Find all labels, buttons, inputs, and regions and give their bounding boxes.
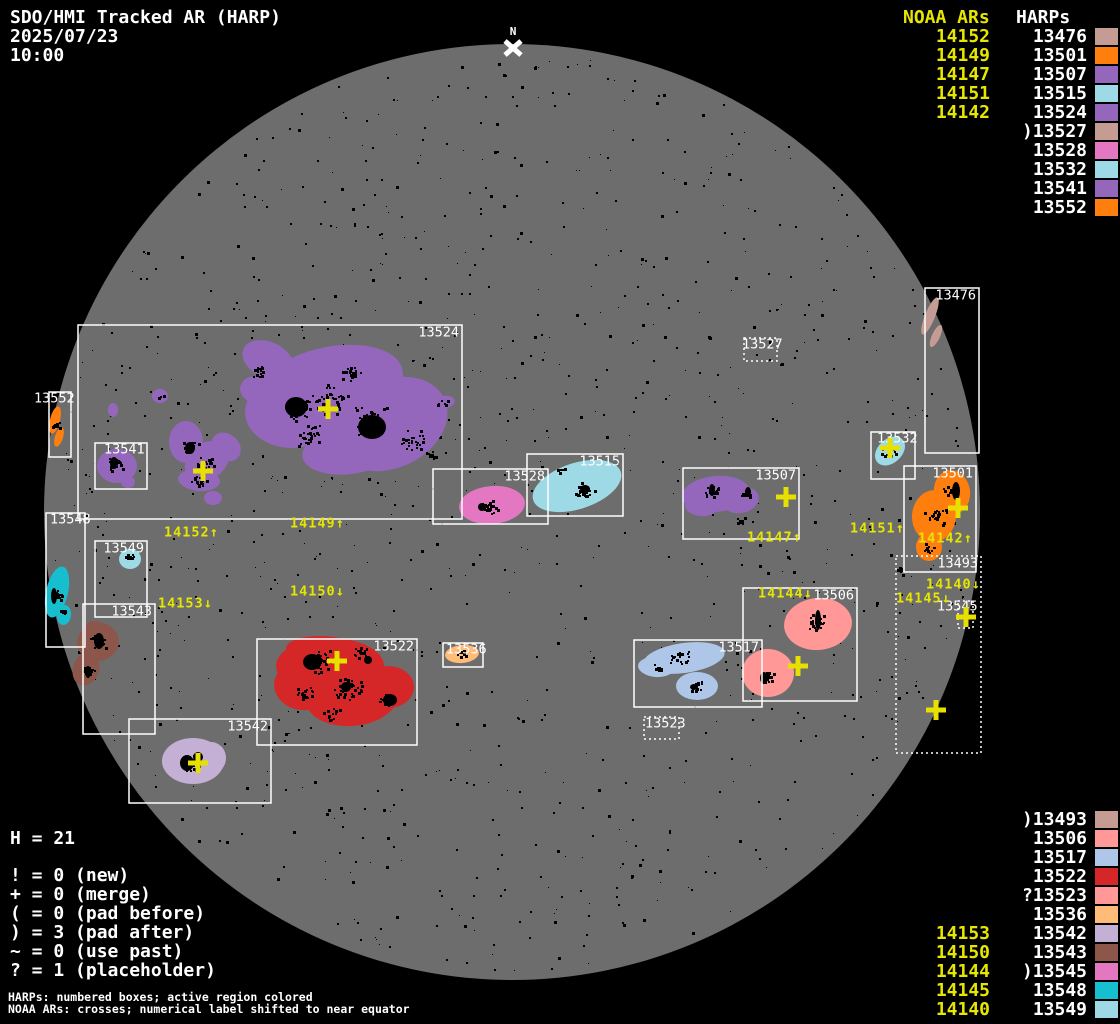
noaa-ar-number — [900, 867, 990, 886]
sunspot-patch — [580, 485, 590, 493]
harp-color-swatch — [1095, 180, 1118, 197]
noaa-ar-number: 14153 — [900, 924, 990, 943]
harp-number: 13528 — [990, 141, 1087, 160]
harp-list-row: 1415213476 — [900, 27, 1120, 46]
harp-number: 13517 — [990, 848, 1087, 867]
noaa-ar-number — [900, 829, 990, 848]
harp-number: 13506 — [990, 829, 1087, 848]
harp-color-swatch — [1095, 199, 1118, 216]
sunspot-patch — [815, 610, 821, 630]
noaa-ar-number — [900, 848, 990, 867]
sdo-hmi-harp-plot: 1352413552135411354813549135431354213522… — [0, 0, 1120, 1024]
region-blob — [204, 491, 222, 505]
noaa-ar-number: 14142 — [900, 103, 990, 122]
sunspot-patch — [760, 672, 768, 684]
harp-color-swatch — [1095, 1001, 1118, 1018]
footer-note-noaa: NOAA ARs: crosses; numerical label shift… — [8, 1003, 410, 1015]
sunspot-patch — [690, 684, 698, 690]
harp-number: 13549 — [990, 1000, 1087, 1019]
sunspot-patch — [745, 487, 751, 497]
harp-number: 13524 — [990, 103, 1087, 122]
noaa-ar-number: 14147 — [900, 65, 990, 84]
sunspot-patch — [478, 503, 486, 511]
sunspot-patch — [952, 482, 960, 500]
harp-list-row: 1415113515 — [900, 84, 1120, 103]
harp-list-row: 1414513548 — [900, 981, 1120, 1000]
sunspot-patch — [285, 397, 307, 417]
noaa-ar-disk-label: 14144↓ — [758, 586, 813, 602]
harp-number: 13552 — [990, 198, 1087, 217]
noaa-ar-disk-label: 14149↑ — [290, 516, 345, 532]
harp-list-row: 13528 — [900, 141, 1120, 160]
harp-color-swatch — [1095, 982, 1118, 999]
noaa-ar-disk-label: 14153↓ — [158, 596, 213, 612]
sunspot-patch — [303, 654, 321, 670]
harp-list-row: 1415313542 — [900, 924, 1120, 943]
harp-list-row: 13506 — [900, 829, 1120, 848]
harp-box-label: 13543 — [111, 604, 152, 620]
harp-list-row: 13552 — [900, 198, 1120, 217]
title-block: SDO/HMI Tracked AR (HARP) 2025/07/23 10:… — [10, 8, 281, 65]
sunspot-patch — [383, 694, 397, 706]
noaa-ar-number — [900, 160, 990, 179]
harp-box-label: 13532 — [877, 431, 918, 447]
harp-list-row: 1414913501 — [900, 46, 1120, 65]
harp-list-row: 13536 — [900, 905, 1120, 924]
noaa-ar-number: 14145 — [900, 981, 990, 1000]
noaa-ar-number — [900, 905, 990, 924]
harp-number: )13493 — [990, 810, 1087, 829]
harp-color-swatch — [1095, 142, 1118, 159]
harp-color-swatch — [1095, 868, 1118, 885]
time-label: 10:00 — [10, 45, 64, 66]
noaa-ar-number — [900, 198, 990, 217]
harp-list-row: )13527 — [900, 122, 1120, 141]
harp-number: ?13523 — [990, 886, 1087, 905]
harp-box-label: 13541 — [104, 442, 145, 458]
region-blob — [108, 403, 118, 417]
harp-list-row: 14144)13545 — [900, 962, 1120, 981]
noaa-ar-number: 14150 — [900, 943, 990, 962]
page-title: SDO/HMI Tracked AR (HARP) — [10, 7, 281, 28]
harp-box-label: 13501 — [932, 466, 973, 482]
harp-number: 13532 — [990, 160, 1087, 179]
harp-color-swatch — [1095, 944, 1118, 961]
harp-box-label: 13524 — [418, 325, 459, 341]
sunspot-patch — [110, 457, 118, 469]
harp-box-label: 13528 — [504, 469, 545, 485]
date-label: 2025/07/23 — [10, 26, 118, 47]
harp-box-label: 13476 — [935, 288, 976, 304]
sunspot-patch — [364, 656, 372, 664]
harp-list-top: 1415213476141491350114147135071415113515… — [900, 27, 1120, 217]
harp-list-row: 13522 — [900, 867, 1120, 886]
noaa-ar-disk-label: 14147↑ — [747, 530, 802, 546]
noaa-ar-disk-label: 14142↑ — [918, 531, 973, 547]
harp-number: 13543 — [990, 943, 1087, 962]
harp-color-swatch — [1095, 811, 1118, 828]
harp-color-swatch — [1095, 161, 1118, 178]
harp-number: 13541 — [990, 179, 1087, 198]
harp-number: 13548 — [990, 981, 1087, 1000]
noaa-ar-number: 14151 — [900, 84, 990, 103]
harp-color-swatch — [1095, 104, 1118, 121]
harp-number: )13545 — [990, 962, 1087, 981]
harp-list-row: 1414213524 — [900, 103, 1120, 122]
noaa-ar-number: 14144 — [900, 962, 990, 981]
sunspot-patch — [51, 588, 57, 604]
harp-box-label: 13527 — [742, 337, 783, 353]
harp-box-label: 13522 — [373, 639, 414, 655]
harp-box-label: 13493 — [937, 556, 978, 572]
noaa-ar-disk-label: 14151↑ — [850, 521, 905, 537]
harp-color-swatch — [1095, 963, 1118, 980]
harp-box-label: 13506 — [813, 588, 854, 604]
north-label: N — [510, 25, 517, 38]
harp-color-swatch — [1095, 849, 1118, 866]
noaa-ar-disk-label: 14150↓ — [290, 584, 345, 600]
harp-color-swatch — [1095, 47, 1118, 64]
harp-color-swatch — [1095, 887, 1118, 904]
noaa-ar-number — [900, 886, 990, 905]
sunspot-patch — [185, 442, 195, 454]
noaa-ar-number — [900, 122, 990, 141]
harp-box-label: 13548 — [50, 512, 91, 528]
noaa-ar-number — [900, 179, 990, 198]
harp-number: 13507 — [990, 65, 1087, 84]
harp-color-swatch — [1095, 925, 1118, 942]
harp-box-label: 13549 — [103, 541, 144, 557]
noaa-ars-header-top: NOAA ARs — [903, 8, 990, 27]
region-blob — [84, 621, 106, 635]
harp-list-row: )13493 — [900, 810, 1120, 829]
harp-color-swatch — [1095, 28, 1118, 45]
harp-number: 13515 — [990, 84, 1087, 103]
sunspot-patch — [341, 682, 351, 692]
harp-color-swatch — [1095, 85, 1118, 102]
harp-box-label: 13542 — [227, 719, 268, 735]
harp-list-row: 1414013549 — [900, 1000, 1120, 1019]
noaa-ar-number: 14140 — [900, 1000, 990, 1019]
harp-count-label: H = 21 — [10, 828, 75, 849]
harp-list-row: 1414713507 — [900, 65, 1120, 84]
harp-number: )13527 — [990, 122, 1087, 141]
noaa-ar-disk-label: 14152↑ — [164, 525, 219, 541]
noaa-ar-number — [900, 141, 990, 160]
harp-color-swatch — [1095, 123, 1118, 140]
harps-header-top: HARPs — [1016, 8, 1070, 27]
harp-list-row: 13541 — [900, 179, 1120, 198]
harp-box-label: 13517 — [718, 640, 759, 656]
region-blob — [121, 476, 135, 488]
harp-box-label: 13515 — [579, 454, 620, 470]
harp-number: 13522 — [990, 867, 1087, 886]
harp-color-swatch — [1095, 66, 1118, 83]
noaa-ar-number: 14152 — [900, 27, 990, 46]
noaa-ar-number: 14149 — [900, 46, 990, 65]
harp-box-label: 13523 — [645, 716, 686, 732]
harp-box-label: 13552 — [34, 391, 75, 407]
harp-box-label: 13536 — [446, 642, 487, 658]
harp-list-row: 13517 — [900, 848, 1120, 867]
noaa-ar-disk-label: 14145↓ — [896, 591, 951, 607]
sunspot-patch — [85, 666, 91, 678]
symbol-legend: ! = 0 (new) + = 0 (merge) ( = 0 (pad bef… — [10, 866, 216, 980]
noaa-ar-number — [900, 810, 990, 829]
harp-number: 13542 — [990, 924, 1087, 943]
sunspot-patch — [94, 633, 104, 649]
harp-list-row: ?13523 — [900, 886, 1120, 905]
sunspot-patch — [709, 484, 715, 496]
harp-color-swatch — [1095, 830, 1118, 847]
harp-box-label: 13507 — [755, 468, 796, 484]
harp-list-bottom: )13493135061351713522?135231353614153135… — [900, 810, 1120, 1019]
harp-number: 13536 — [990, 905, 1087, 924]
sunspot-patch — [358, 415, 386, 439]
harp-list-row: 13532 — [900, 160, 1120, 179]
harp-list-row: 1415013543 — [900, 943, 1120, 962]
harp-number: 13476 — [990, 27, 1087, 46]
harp-number: 13501 — [990, 46, 1087, 65]
harp-color-swatch — [1095, 906, 1118, 923]
